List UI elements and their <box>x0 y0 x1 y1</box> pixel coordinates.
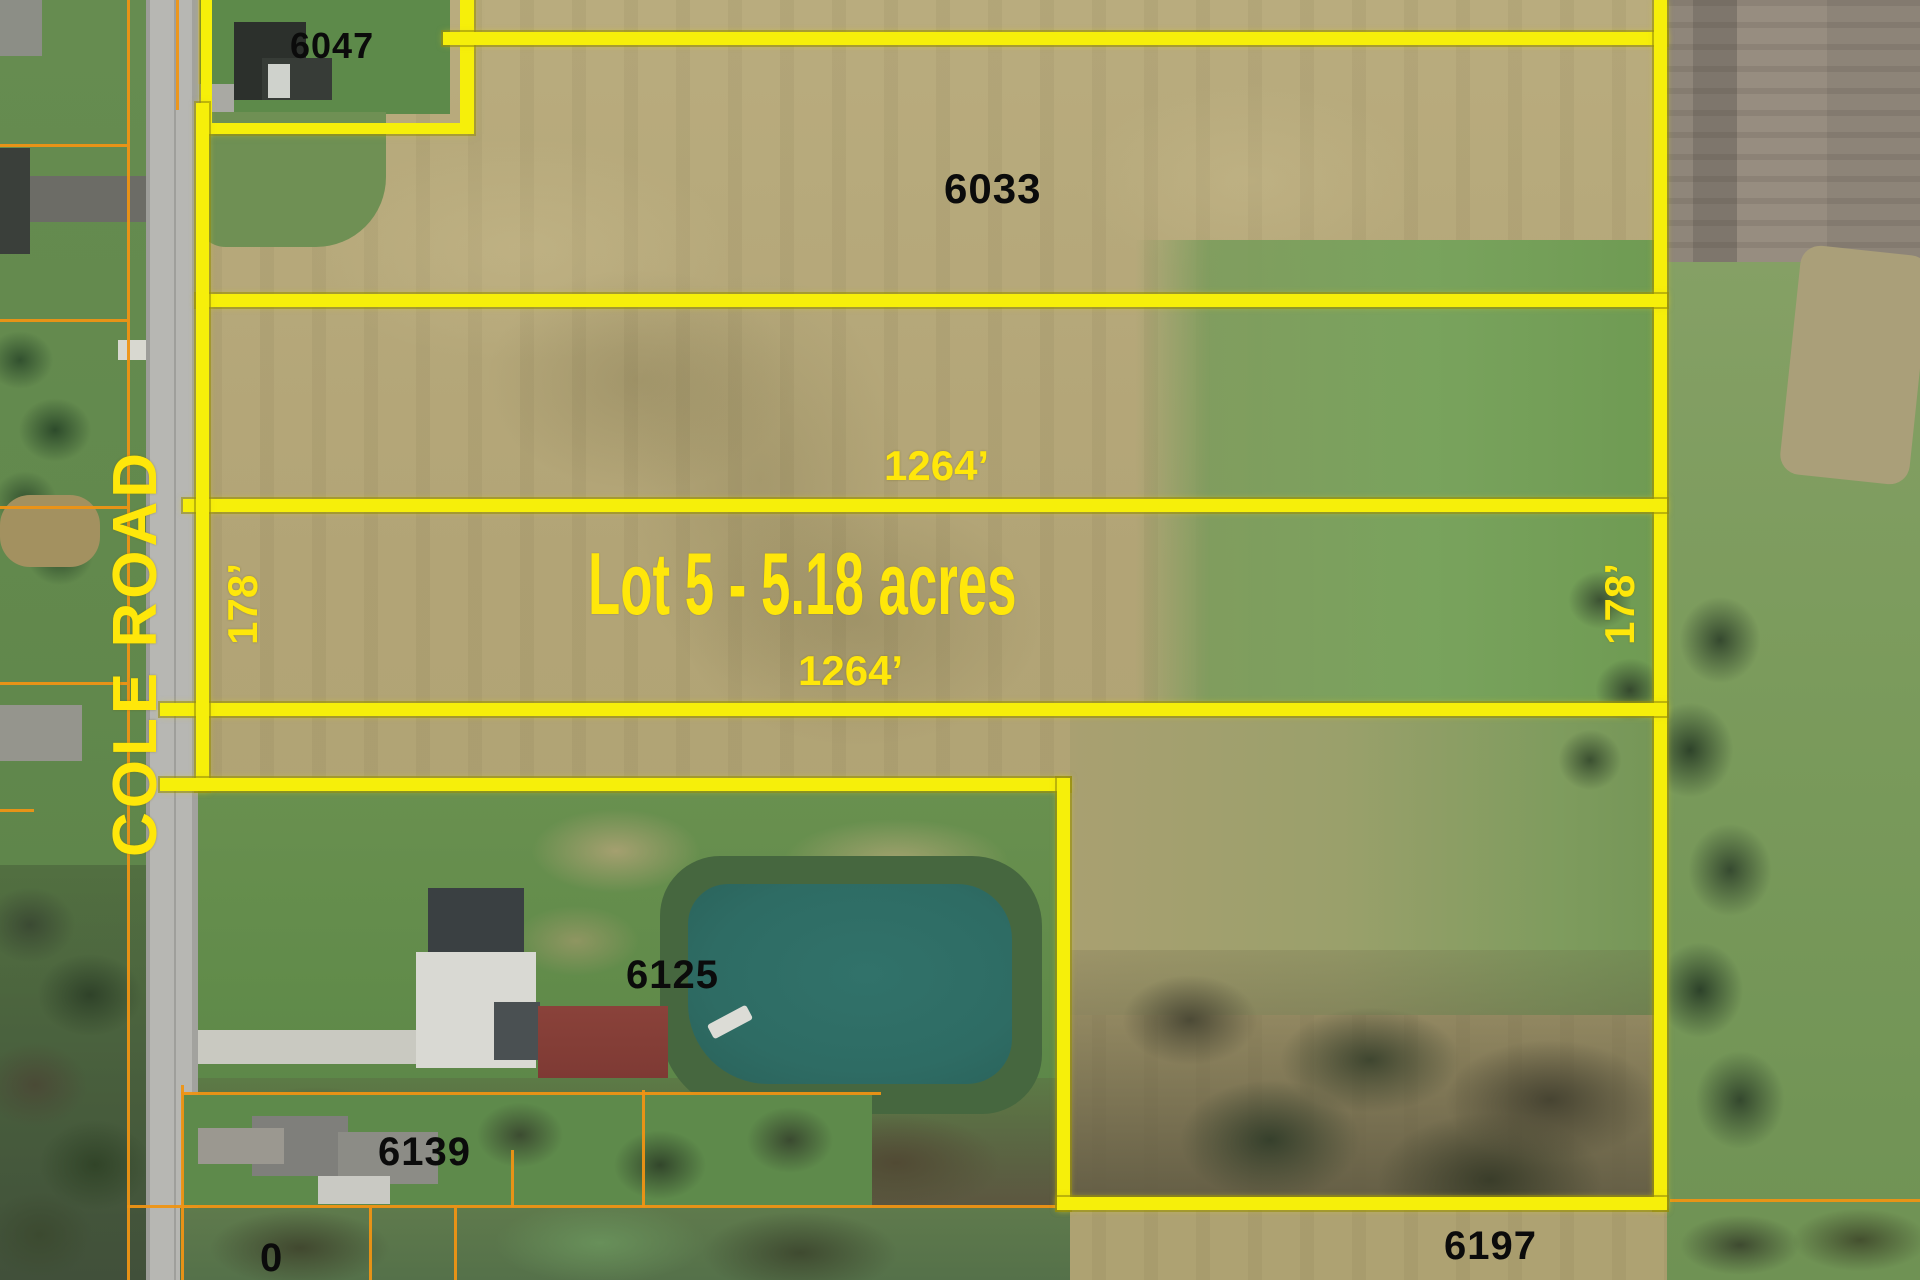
boundary-east-line <box>1654 0 1667 1210</box>
bottom-strip <box>180 1208 1070 1280</box>
shed-white <box>118 340 146 360</box>
parcel-number-6125: 6125 <box>626 955 719 995</box>
dimension-top-1264: 1264’ <box>884 445 989 487</box>
tan-wedge-east <box>1778 244 1920 486</box>
boundary-south-step-v <box>1057 778 1070 1210</box>
dimension-east-178: 178’ <box>1598 547 1642 661</box>
garage-red-roof <box>538 1006 668 1078</box>
boundary-south-line <box>1057 1197 1667 1210</box>
parcel-line-south <box>127 1205 1057 1208</box>
boundary-west-line <box>196 103 209 791</box>
woods-bottom-right <box>1070 950 1670 1210</box>
dimension-west-178: 178’ <box>221 547 265 661</box>
boundary-south-step-h <box>160 778 1070 791</box>
parcel-line-6125-east <box>642 1090 645 1207</box>
house-west-3 <box>0 705 82 761</box>
parcel-line-6139-west <box>181 1085 184 1280</box>
boundary-6047-box <box>201 0 474 134</box>
lot5-title: Lot 5 - 5.18 acres <box>588 540 1016 628</box>
parcel-number-6033: 6033 <box>944 168 1041 210</box>
driveway-6125 <box>198 1030 430 1064</box>
parcel-line-6139-north <box>181 1092 881 1095</box>
parcel-line-west-h5 <box>0 809 34 812</box>
cole-road-label: COLE ROAD <box>100 433 172 873</box>
parcel-number-6197: 6197 <box>1444 1226 1537 1266</box>
pond <box>688 884 1012 1084</box>
parcel-number-0: 0 <box>260 1238 283 1278</box>
green-field-east <box>1135 240 1675 715</box>
lot5-north-line <box>183 499 1667 512</box>
parcel-line-south-east <box>1670 1199 1920 1202</box>
parcel-number-6047: 6047 <box>290 28 374 64</box>
dimension-bottom-1264: 1264’ <box>798 650 903 692</box>
house-6125-wing <box>494 1002 540 1060</box>
parcel-line-6047-west <box>176 0 179 110</box>
parcel-line-west-h1 <box>0 144 127 147</box>
driveway-6139 <box>198 1128 284 1164</box>
parcel-line-west-h2 <box>0 319 127 322</box>
boundary-north-line <box>443 32 1667 45</box>
lot5-south-line <box>160 703 1667 716</box>
lot-divider-line-1 <box>196 294 1667 307</box>
parcel-line-stub-1 <box>369 1208 372 1280</box>
parcel-number-6139: 6139 <box>378 1132 471 1172</box>
plowed-field-northeast <box>1667 0 1920 268</box>
parcel-line-stub-3 <box>511 1150 514 1207</box>
house-west-top-corner <box>0 0 42 56</box>
house-6139-patio <box>318 1176 390 1204</box>
aerial-parcel-map: 6047 6033 6125 6139 6197 0 Lot 5 - 5.18 … <box>0 0 1920 1280</box>
road-center-seam <box>174 0 176 1280</box>
parcel-line-stub-2 <box>454 1208 457 1280</box>
house-west-2 <box>0 148 30 254</box>
